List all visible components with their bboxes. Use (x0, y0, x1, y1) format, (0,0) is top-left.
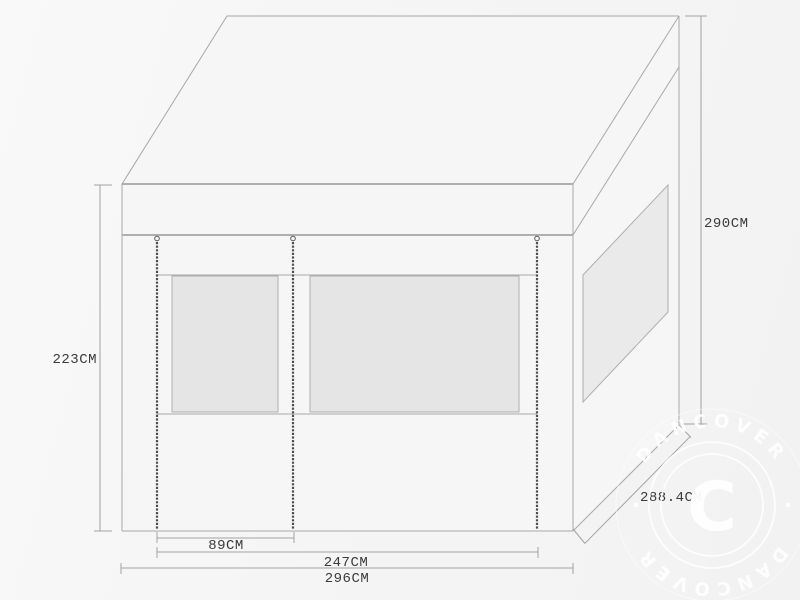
dimension-line (680, 16, 707, 424)
front-window-left (172, 276, 278, 412)
dimension-label-290cm: 290CM (704, 216, 749, 232)
watermark-copyright-c: C (687, 468, 737, 547)
watermark-dot-left (634, 503, 639, 508)
watermark-dot-right (786, 503, 791, 508)
watermark-brand-arc-bottom: DANCOVER (632, 543, 792, 600)
dimension-label-223cm: 223CM (52, 352, 97, 368)
front-window-band (157, 275, 537, 414)
dimension-total-height: 290CM (680, 16, 749, 424)
diagram-image: 223CM 290CM 89CM 247CM 296CM 288.4CM C (0, 0, 800, 600)
gazebo-drawing (122, 16, 679, 531)
dimension-label-247cm: 247CM (324, 555, 369, 571)
diagram-canvas: 223CM 290CM 89CM 247CM 296CM 288.4CM C (0, 0, 800, 600)
dimension-front-height: 223CM (52, 185, 112, 531)
dimension-door-width: 89CM (157, 532, 294, 554)
front-window-right (310, 276, 519, 412)
dimension-label-296cm: 296CM (325, 571, 370, 587)
